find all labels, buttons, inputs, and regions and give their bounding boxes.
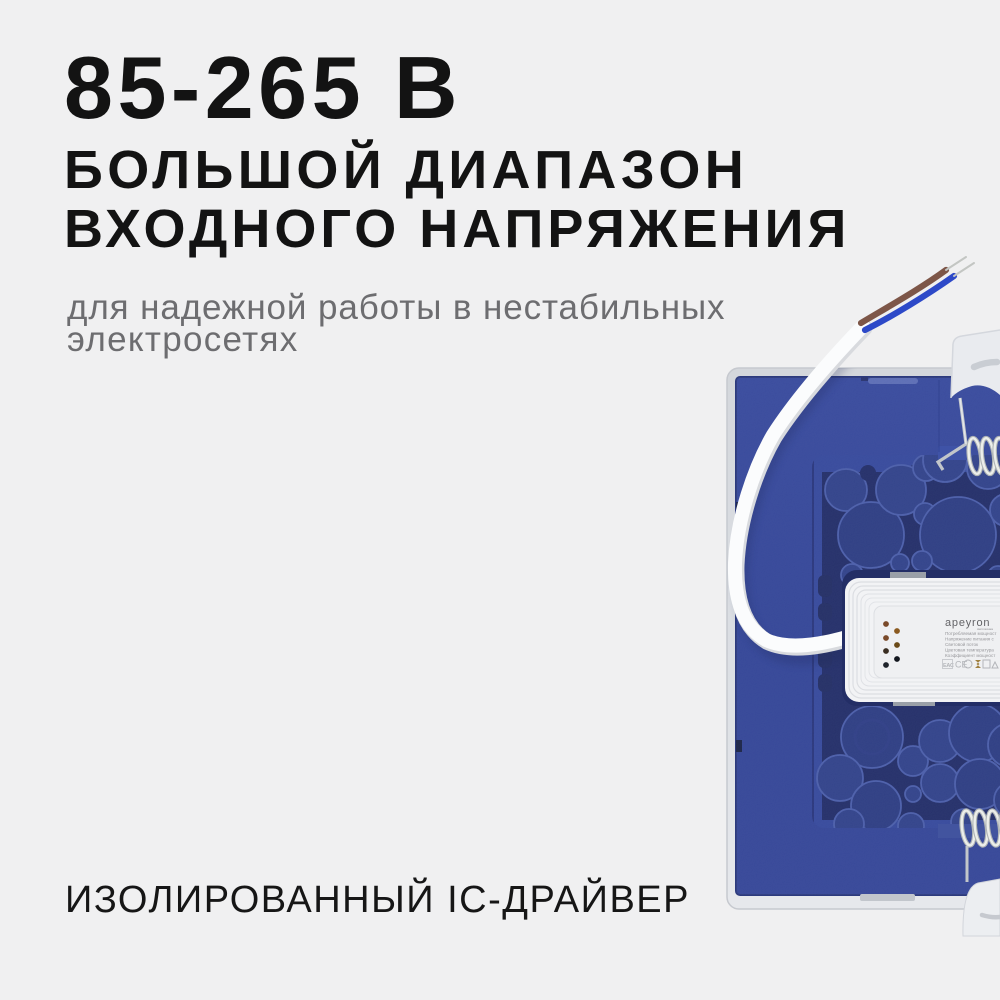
svg-text:Световой поток: Световой поток bbox=[945, 641, 979, 647]
svg-text:Напряжение питания с: Напряжение питания с bbox=[945, 637, 994, 642]
svg-text:Потребляемая мощност: Потребляемая мощност bbox=[945, 631, 997, 636]
svg-text:Коэффициент мощност: Коэффициент мощност bbox=[945, 653, 996, 658]
svg-text:Цветовая температура: Цветовая температура bbox=[945, 648, 994, 653]
